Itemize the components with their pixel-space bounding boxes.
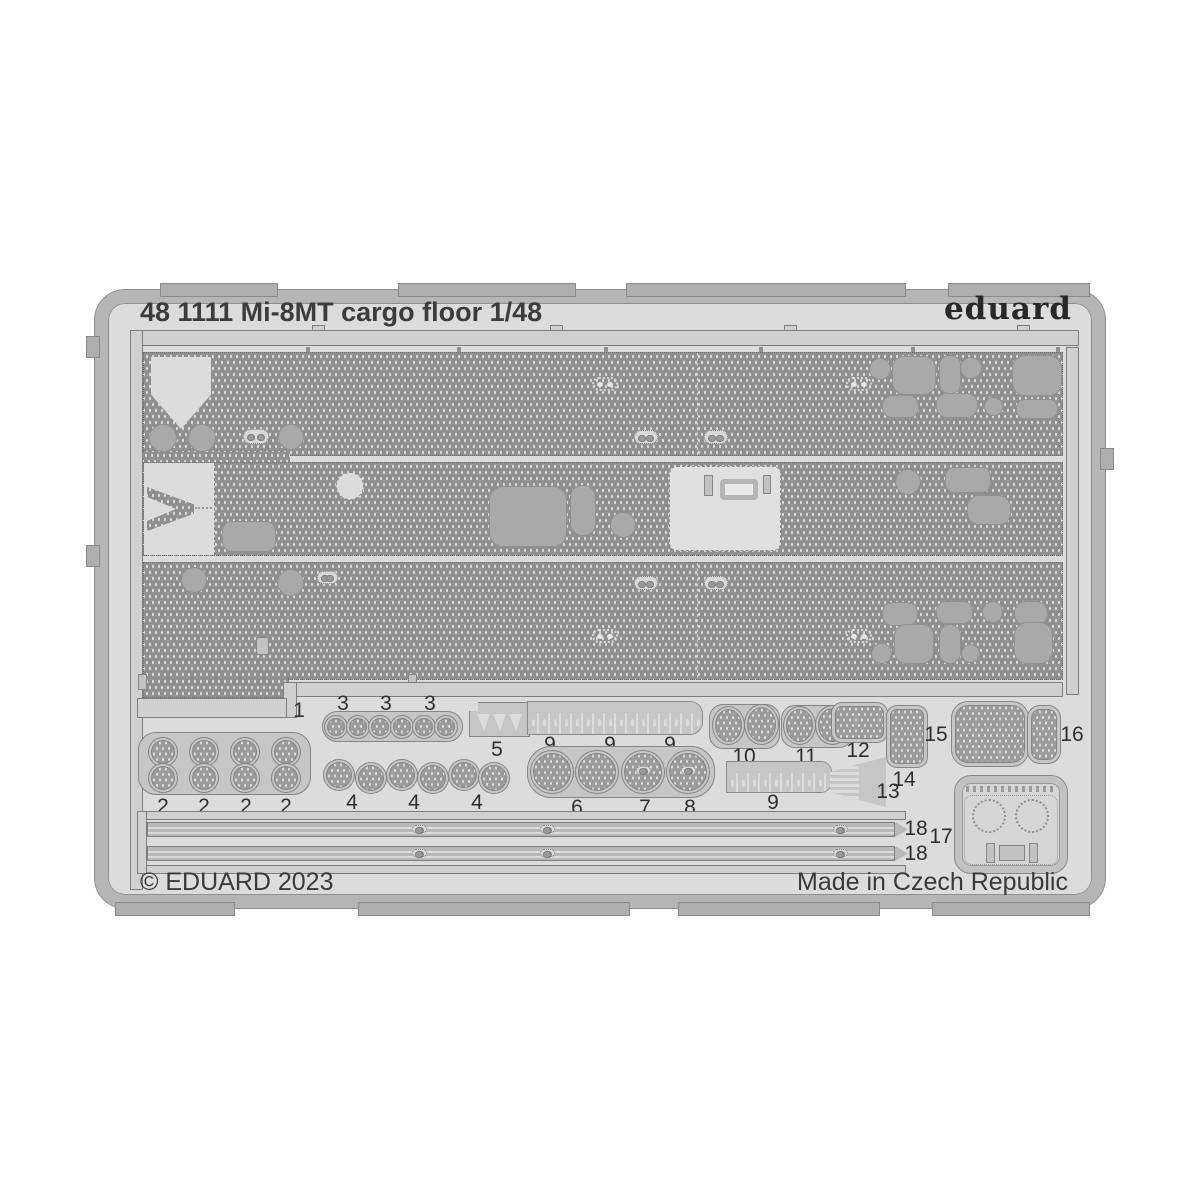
small-part	[704, 475, 713, 496]
smooth-rect	[939, 624, 961, 664]
smooth-rect	[489, 486, 567, 547]
part-number-16: 16	[1057, 723, 1087, 747]
latch-detail	[636, 766, 651, 775]
part-2-disc	[149, 764, 177, 792]
smooth-circle	[188, 424, 216, 452]
frame-tab	[115, 902, 235, 916]
part-number-15: 15	[921, 723, 951, 747]
strip-mark	[540, 825, 555, 833]
strip-mark	[540, 849, 555, 857]
part-number-3: 3	[328, 692, 358, 716]
smooth-circle	[610, 512, 636, 538]
tiedown-mark	[243, 429, 269, 444]
perforation-line	[697, 353, 698, 455]
latch-detail	[681, 766, 696, 775]
smooth-rect	[945, 467, 991, 493]
part-number-3: 3	[371, 692, 401, 716]
smooth-circle	[181, 567, 207, 593]
part-number-5: 5	[482, 738, 512, 762]
smooth-rect	[570, 485, 596, 536]
tiedown-mark	[846, 629, 872, 643]
left-rail	[130, 330, 143, 890]
smooth-rect	[882, 602, 918, 626]
part-number-3: 3	[415, 692, 445, 716]
smooth-circle	[278, 424, 304, 450]
part-2-disc	[190, 764, 218, 792]
part-number-13: 13	[873, 780, 903, 804]
smooth-rect	[1016, 399, 1058, 419]
frame-tab	[398, 283, 576, 297]
plate-detail-rect	[999, 845, 1025, 861]
perforation-trail	[195, 507, 212, 509]
part-number-17: 17	[926, 825, 956, 849]
rail-joint-tab	[550, 325, 563, 331]
smooth-circle	[895, 469, 921, 495]
smooth-circle	[277, 569, 304, 596]
part-4-disc	[387, 760, 417, 790]
photoetch-fret-photo: 48 1111 Mi-8MT cargo floor 1/48 eduard	[0, 0, 1200, 1200]
small-part	[138, 674, 147, 690]
smooth-rect	[939, 355, 961, 394]
left-lower-rail	[137, 698, 287, 718]
part-16-panel	[1028, 706, 1060, 763]
part-12-panel	[832, 703, 887, 742]
part-5-step	[469, 702, 478, 711]
plate-spool-outline	[972, 799, 1006, 833]
smooth-rect	[936, 601, 973, 624]
part-9-comb	[528, 702, 702, 734]
part-6-disc	[531, 751, 573, 793]
part-2-disc	[231, 764, 259, 792]
eduard-logo: eduard	[940, 291, 1072, 327]
small-part	[256, 637, 269, 655]
plate-detail-rect	[1029, 843, 1038, 863]
hatch-cutout	[669, 466, 781, 551]
fret-title: 48 1111 Mi-8MT cargo floor 1/48	[140, 297, 542, 328]
plate-serrated-edge	[966, 786, 1056, 792]
strip-mark	[412, 825, 427, 833]
rail-joint-tab	[312, 325, 325, 331]
part-18-strip	[147, 822, 895, 837]
mid-rail	[289, 682, 1063, 697]
strip-mark	[833, 849, 848, 857]
tiedown-mark	[592, 377, 618, 391]
frame-tab	[358, 902, 630, 916]
right-rail	[1066, 347, 1079, 695]
floor-panel-step	[143, 678, 289, 698]
smooth-rect	[1014, 622, 1053, 664]
part-4-disc	[418, 763, 448, 793]
part-18-strip	[147, 846, 895, 861]
part-3-disc	[413, 716, 435, 738]
part-3-disc	[369, 716, 391, 738]
smooth-rect	[892, 356, 936, 395]
part-3-disc	[391, 716, 413, 738]
part-number-12: 12	[843, 739, 873, 763]
frame-tab	[86, 545, 100, 567]
smooth-circle	[960, 357, 982, 379]
part-4-disc	[479, 763, 509, 793]
part-9-comb	[727, 762, 831, 792]
smooth-circle	[982, 601, 1003, 623]
frame-tab	[86, 336, 100, 358]
tiedown-mark	[592, 629, 618, 643]
part-3-disc	[435, 716, 457, 738]
smooth-circle	[984, 397, 1003, 416]
smooth-circle	[961, 644, 980, 663]
tiedown-mark	[317, 571, 338, 584]
smooth-rect	[967, 495, 1011, 525]
tiedown-mark	[634, 576, 658, 590]
smooth-circle	[149, 424, 177, 452]
part-2-disc	[272, 764, 300, 792]
plate-detail-rect	[986, 843, 995, 863]
circle-cutout	[336, 472, 364, 500]
frame-tab	[1100, 448, 1114, 470]
frame-tab	[626, 283, 906, 297]
frame-tab	[932, 902, 1090, 916]
rail-joint-tab	[784, 325, 797, 331]
plate-spool-outline	[1015, 799, 1049, 833]
part-10-pad	[745, 705, 778, 744]
frame-tab	[160, 283, 278, 297]
part-2-disc	[149, 738, 177, 766]
smooth-rect	[882, 395, 919, 418]
part-number-1: 1	[284, 699, 314, 723]
part-2-disc	[272, 738, 300, 766]
tiedown-mark	[704, 576, 728, 590]
rail-joint-tab	[1017, 325, 1030, 331]
part-6-disc	[576, 751, 618, 793]
smooth-rect	[222, 521, 276, 552]
tiedown-mark	[846, 377, 872, 391]
part-11-pad	[784, 707, 815, 744]
part-3-disc	[325, 716, 347, 738]
part-4-disc	[449, 760, 479, 790]
smooth-rect	[894, 624, 934, 664]
part-2-disc	[231, 738, 259, 766]
made-in-text: Made in Czech Republic	[700, 868, 1068, 897]
tiedown-mark	[704, 430, 728, 444]
part-3-disc	[347, 716, 369, 738]
tiedown-mark	[634, 430, 658, 444]
part-10-pad	[713, 707, 744, 744]
smooth-circle	[869, 358, 891, 380]
strip-mark	[833, 825, 848, 833]
strip-frame-cap	[137, 811, 147, 874]
top-rail	[132, 330, 1079, 346]
strip-mark	[412, 849, 427, 857]
floor-panel-middle	[143, 462, 1063, 556]
perforation-line	[697, 563, 698, 678]
part-4-disc	[356, 763, 386, 793]
part-15-panel	[952, 702, 1028, 766]
small-part	[763, 475, 771, 494]
strip-frame-top	[137, 811, 906, 820]
part-4-disc	[324, 760, 354, 790]
buckle-part	[720, 479, 758, 500]
smooth-rect	[936, 393, 978, 418]
frame-tab	[678, 902, 880, 916]
smooth-rect	[1012, 355, 1062, 396]
smooth-circle	[871, 643, 892, 664]
copyright-text: © EDUARD 2023	[140, 868, 334, 897]
part-2-disc	[190, 738, 218, 766]
